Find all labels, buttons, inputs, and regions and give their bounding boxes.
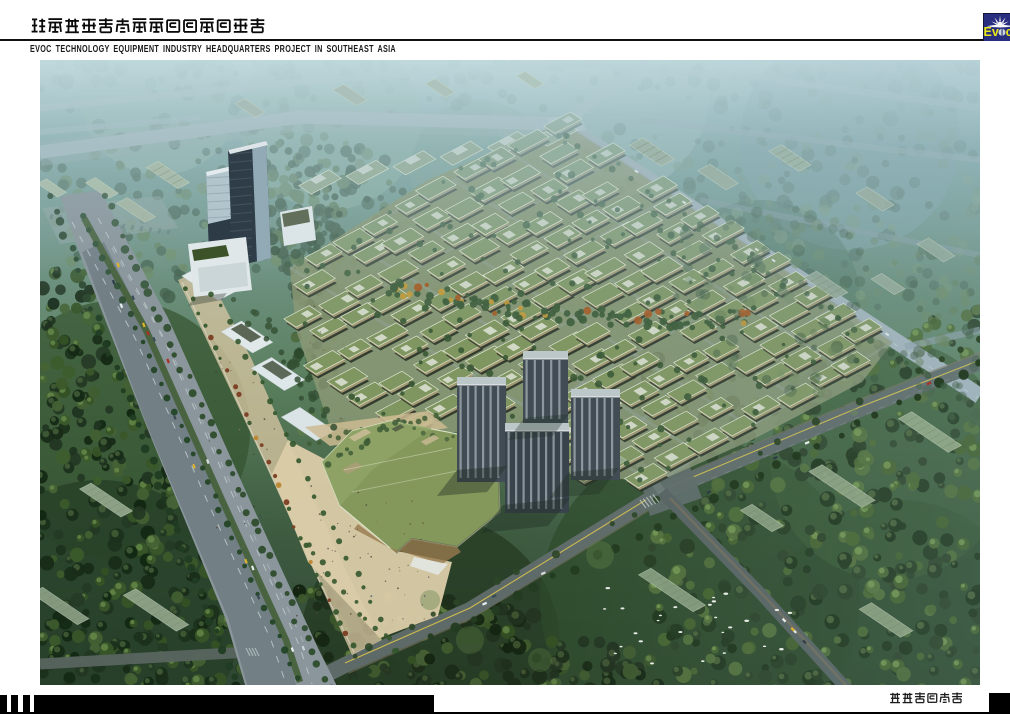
svg-text:c: c <box>1006 25 1010 39</box>
svg-text:Ev: Ev <box>984 25 999 39</box>
